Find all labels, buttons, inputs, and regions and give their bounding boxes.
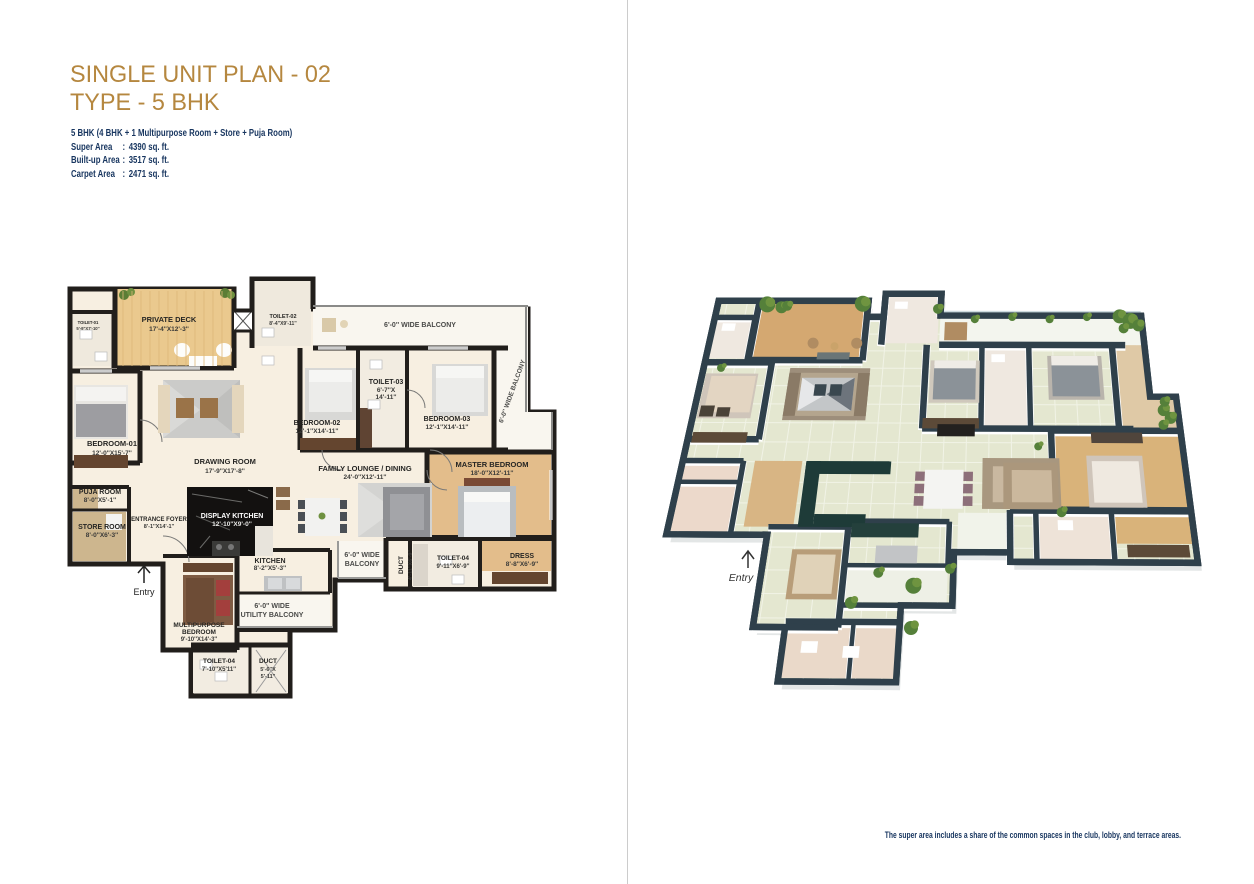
svg-text:Entry: Entry bbox=[729, 572, 754, 584]
